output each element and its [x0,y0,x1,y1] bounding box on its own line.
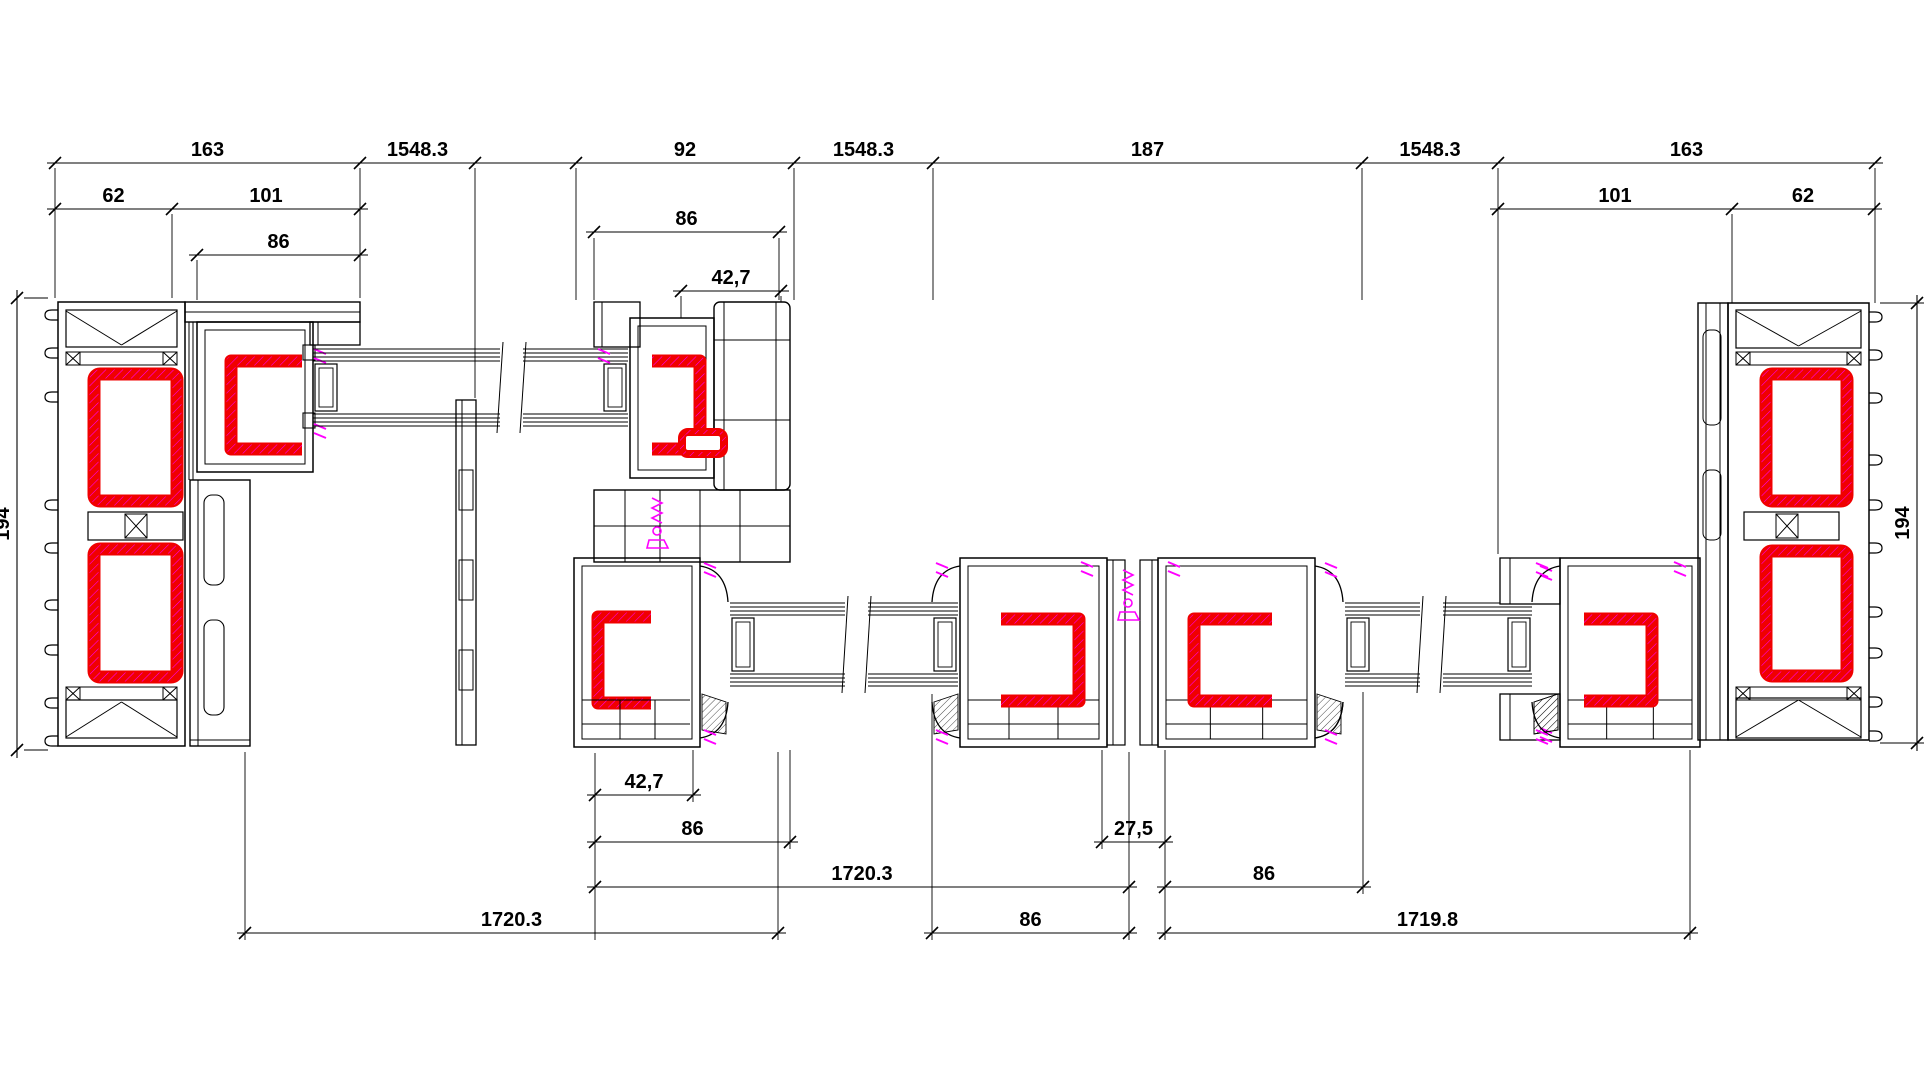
cad-drawing: 1631548.3921548.31871548.316362101101628… [0,0,1927,1084]
dimension-label-vertical: 194 [1892,505,1914,539]
dimension-label: 62 [1792,185,1814,207]
glazing-clamp-hatch [934,694,958,734]
glazing-unit-bottom-right [1345,596,1532,693]
left-jamb-profile [190,480,250,746]
glass-division-profile [456,400,476,745]
mid-junction-frame-and-sash [574,302,790,747]
steel-reinforcement-box [1766,551,1847,676]
glazing-clamp-hatch [702,694,726,734]
dimension-label: 1719.8 [1397,909,1458,931]
dimension-label: 1720.3 [481,909,542,931]
dimension-label: 1548.3 [833,139,894,161]
meeting-stile-hardware [1107,560,1158,745]
steel-reinforcement-box [94,374,177,501]
dimension-label: 163 [1670,139,1703,161]
glazing-unit-bottom-left [730,596,958,693]
sash-center-left [932,558,1107,747]
right-frame-rebate-profile [1500,303,1728,742]
steel-reinforcement-box [682,432,724,454]
dimension-label: 86 [1019,909,1041,931]
steel-reinforcement-c [1194,619,1272,701]
steel-reinforcement-box [94,549,177,677]
dimension-label-vertical: 194 [0,506,14,540]
steel-reinforcement-box [1766,374,1847,501]
cad-canvas: 1631548.3921548.31871548.316362101101628… [0,0,1927,1084]
dimension-label: 86 [1253,863,1275,885]
right-coupled-mullion-profile [1728,303,1882,741]
dimension-label: 163 [191,139,224,161]
dimension-label: 86 [267,231,289,253]
dimension-label: 101 [1598,185,1631,207]
dimension-label: 42,7 [625,771,664,793]
steel-reinforcement-c [1001,619,1079,701]
dimension-label: 27,5 [1114,818,1153,840]
dimension-label: 62 [102,185,124,207]
dimension-layer: 1631548.3921548.31871548.316362101101628… [0,139,1923,939]
dimension-label: 187 [1131,139,1164,161]
dimension-label: 1720.3 [831,863,892,885]
steel-reinforcement-c [1584,619,1652,701]
dimension-label: 86 [681,818,703,840]
dimension-label: 86 [675,208,697,230]
left-corner-frame-and-sash [185,302,360,480]
sash-center-right [1158,558,1343,747]
dimension-label: 92 [674,139,696,161]
dimension-label: 1548.3 [387,139,448,161]
glazing-clamp-hatch [1317,694,1341,734]
left-coupled-mullion-profile [45,302,185,746]
glazing-clamp-hatch [1534,694,1558,734]
glazing-unit-top [313,342,628,433]
extension-line-layer [24,168,1924,940]
dimension-label: 1548.3 [1399,139,1460,161]
dimension-label: 101 [249,185,282,207]
steel-reinforcement-c [598,617,651,703]
dimension-label: 42,7 [712,267,751,289]
steel-reinforcement-c [231,361,302,449]
